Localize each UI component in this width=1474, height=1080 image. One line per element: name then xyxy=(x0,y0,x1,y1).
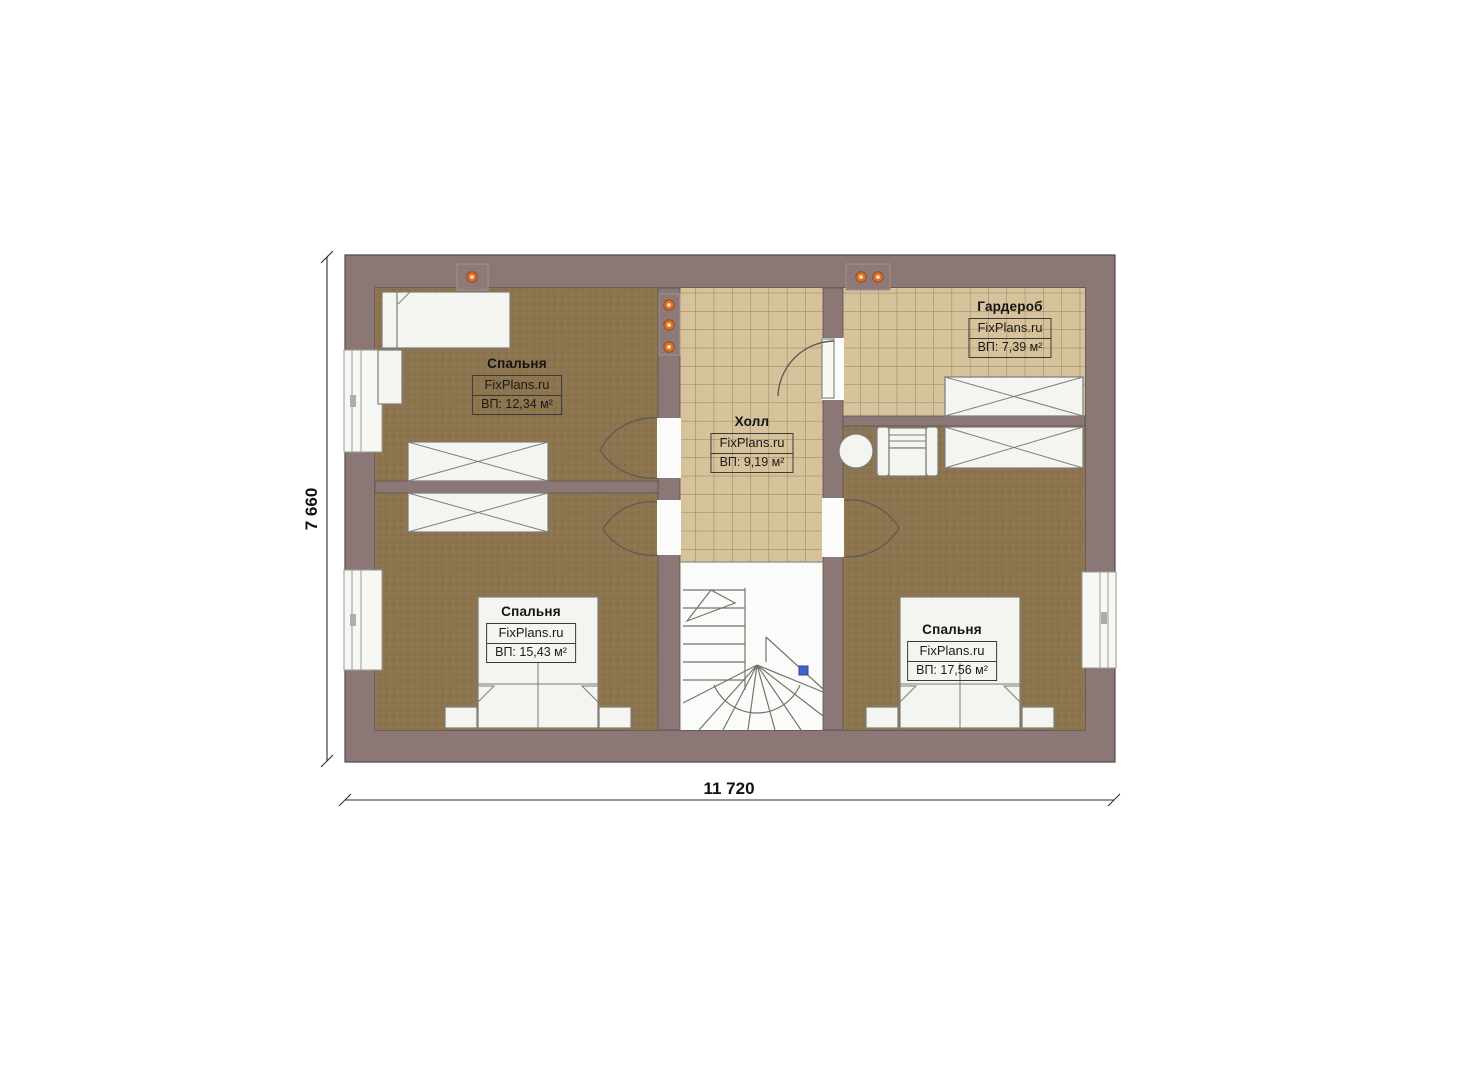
room-name: Гардероб xyxy=(968,299,1051,315)
wardrobe-cabinet xyxy=(408,493,548,532)
room-area: ВП: 15,43 м² xyxy=(487,644,575,662)
room-info-box: FixPlans.ru ВП: 12,34 м² xyxy=(472,375,562,415)
room-brand: FixPlans.ru xyxy=(473,376,561,396)
window-right xyxy=(1082,572,1116,668)
room-label-hall: Холл FixPlans.ru ВП: 9,19 м² xyxy=(710,414,793,473)
room-brand: FixPlans.ru xyxy=(487,624,575,644)
window-left-upper xyxy=(344,350,382,452)
armchair xyxy=(877,427,938,476)
dimension-width-label: 11 720 xyxy=(703,779,754,799)
nightstand xyxy=(445,707,477,728)
nightstand xyxy=(599,707,631,728)
room-label-wardrobe: Гардероб FixPlans.ru ВП: 7,39 м² xyxy=(968,299,1051,358)
room-info-box: FixPlans.ru ВП: 9,19 м² xyxy=(710,433,793,473)
room-area: ВП: 12,34 м² xyxy=(473,396,561,414)
nightstand xyxy=(866,707,898,728)
room-label-bedroom-upper-left: Спальня FixPlans.ru ВП: 12,34 м² xyxy=(472,356,562,415)
room-brand: FixPlans.ru xyxy=(908,642,996,662)
room-brand: FixPlans.ru xyxy=(711,434,792,454)
room-info-box: FixPlans.ru ВП: 7,39 м² xyxy=(968,318,1051,358)
wardrobe-cabinet xyxy=(945,427,1083,468)
nightstand xyxy=(378,350,402,404)
room-name: Спальня xyxy=(907,622,997,638)
room-area: ВП: 9,19 м² xyxy=(711,454,792,472)
room-info-box: FixPlans.ru ВП: 17,56 м² xyxy=(907,641,997,681)
room-label-bedroom-lower-right: Спальня FixPlans.ru ВП: 17,56 м² xyxy=(907,622,997,681)
room-area: ВП: 7,39 м² xyxy=(969,339,1050,357)
wardrobe-cabinet xyxy=(945,377,1083,416)
stair-marker xyxy=(799,666,808,675)
window-left-lower xyxy=(344,570,382,670)
room-name: Спальня xyxy=(472,356,562,372)
room-name: Спальня xyxy=(486,604,576,620)
floor-plan-drawing xyxy=(0,0,1474,1080)
dimension-height-label: 7 660 xyxy=(302,488,322,531)
wall-left-bedrooms-divider xyxy=(375,481,658,493)
room-name: Холл xyxy=(710,414,793,430)
wardrobe-cabinet xyxy=(408,442,548,481)
nightstand xyxy=(1022,707,1054,728)
room-info-box: FixPlans.ru ВП: 15,43 м² xyxy=(486,623,576,663)
wall-wardrobe-bedroom-divider xyxy=(843,416,1085,426)
room-brand: FixPlans.ru xyxy=(969,319,1050,339)
floor-plan-page: Спальня FixPlans.ru ВП: 12,34 м² Холл Fi… xyxy=(0,0,1474,1080)
room-area: ВП: 17,56 м² xyxy=(908,662,996,680)
room-label-bedroom-lower-left: Спальня FixPlans.ru ВП: 15,43 м² xyxy=(486,604,576,663)
